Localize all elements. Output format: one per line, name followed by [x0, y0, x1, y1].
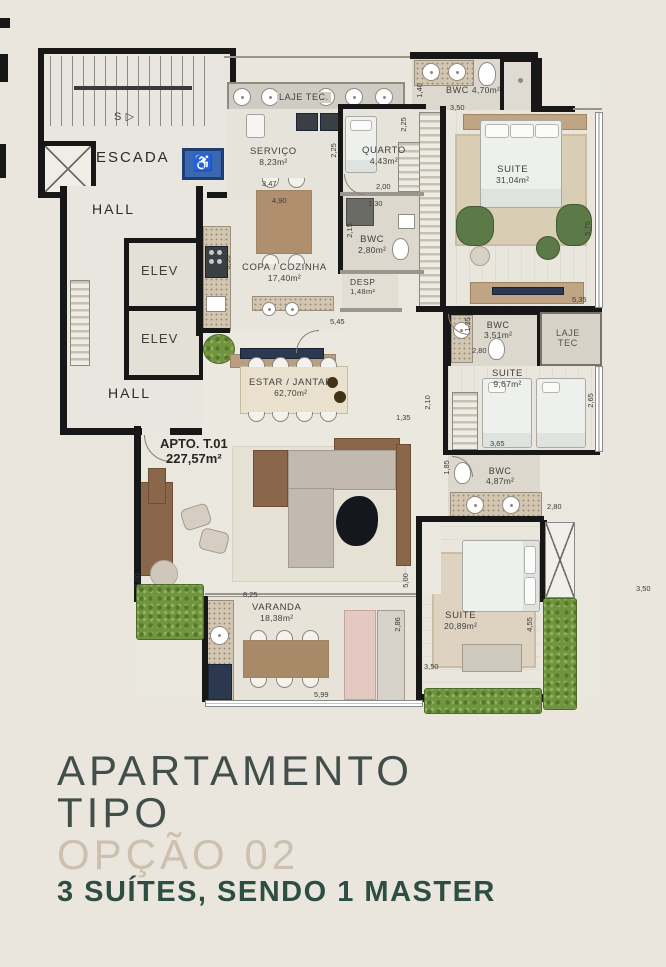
laje-right-1: LAJE: [556, 328, 580, 338]
dimension-label: 5,99: [314, 690, 329, 699]
bwc-social-name: BWC: [360, 234, 384, 245]
wall: [416, 516, 422, 702]
chair-icon: [320, 357, 337, 367]
dimension-label: 2,10: [423, 395, 432, 410]
dimension-label: 1,40: [415, 83, 424, 98]
sliding-door-line: [205, 596, 421, 597]
title-line-1: APARTAMENTO: [57, 750, 413, 792]
bowl-icon: [334, 391, 346, 403]
bowl-icon: [327, 377, 338, 388]
sideboard-icon: [253, 450, 288, 507]
wall: [440, 106, 446, 310]
desp-label: DESP 1,48m²: [350, 278, 376, 296]
pillow: [350, 120, 372, 131]
bwc-suite3-counter: [450, 492, 542, 518]
kitchen-sink: [206, 296, 226, 312]
pillow: [510, 124, 534, 138]
wall: [410, 52, 538, 59]
elevator-2: ELEV: [124, 306, 204, 380]
wall: [338, 104, 343, 274]
dining-table: ESTAR / JANTAR 62,70m²: [240, 366, 348, 414]
side-table-icon: [470, 246, 490, 266]
wall: [196, 186, 203, 336]
dimension-label: 3,55: [223, 255, 232, 270]
dimension-label: 3,50: [636, 584, 651, 593]
dimension-label: 2,86: [393, 617, 402, 632]
dimension-label: 1,35: [396, 413, 411, 422]
wall-stub: [0, 144, 6, 178]
laje-tec-right: LAJE TEC: [540, 312, 602, 366]
apartment-label: APTO. T.01 227,57m²: [160, 436, 228, 466]
quarto-area: 4,43m²: [370, 156, 398, 166]
parapet-line: [573, 108, 602, 110]
toilet-icon: [478, 62, 496, 86]
pillow: [542, 382, 560, 393]
chair-icon: [250, 630, 267, 640]
stool-icon: [285, 302, 299, 316]
sink-icon: [502, 496, 520, 514]
dimension-label: 1,30: [368, 199, 383, 208]
dimension-label: 1,85: [442, 460, 451, 475]
partition: [340, 308, 402, 312]
sink-icon: [210, 626, 229, 645]
laundry-sink: [246, 114, 265, 138]
suite-master-name: SUITE: [497, 164, 528, 175]
suite2-area: 9,67m²: [493, 379, 521, 389]
suite3-label: SUITE 20,89m²: [444, 610, 477, 632]
wall: [196, 328, 230, 333]
varanda-table: [243, 640, 329, 678]
wall-stub: [0, 54, 8, 82]
armchair-icon: [456, 206, 494, 246]
pergola-hatch: [545, 522, 575, 598]
stair-room-label: ESCADA: [96, 152, 170, 163]
estar-name: ESTAR / JANTAR: [249, 377, 333, 388]
suite-master-label: SUITE 31,04m²: [496, 164, 529, 186]
dimension-label: 5,00: [133, 573, 142, 588]
wall: [416, 516, 544, 522]
apartment-area: 227,57m²: [166, 451, 222, 466]
dimension-label: 5,00: [401, 573, 410, 588]
wheelchair-icon: ♿: [182, 148, 224, 180]
bwc-master-name: BWC: [446, 85, 469, 95]
title-subtitle: 3 SUÍTES, SENDO 1 MASTER: [57, 876, 496, 909]
dimension-label: 8,25: [243, 590, 258, 599]
wall: [443, 306, 448, 452]
sink-square: [398, 214, 415, 229]
chair-icon: [302, 630, 319, 640]
suite3-area: 20,89m²: [444, 621, 477, 631]
stool-icon: [262, 302, 276, 316]
pillow: [524, 577, 536, 605]
bed-icon: [462, 540, 540, 612]
estar-area: 62,70m²: [274, 388, 307, 398]
estar-label: ESTAR / JANTAR 62,70m²: [249, 377, 333, 399]
dimension-label: 3,65: [490, 439, 505, 448]
wall: [338, 104, 426, 109]
servico-area: 8,23m²: [259, 157, 287, 167]
laje-circle: [233, 88, 251, 106]
laje-tec-right-label: LAJE TEC: [556, 328, 580, 348]
dimension-label: 4,90: [272, 196, 287, 205]
copa-label: COPA / COZINHA 17,40m²: [242, 262, 327, 284]
dimension-label: 3,50: [424, 662, 439, 671]
bwc-suite2-area: 3,51m²: [484, 330, 512, 340]
dimension-label: 2,00: [376, 182, 391, 191]
copa-name: COPA / COZINHA: [242, 262, 327, 273]
hedge-planter: [424, 688, 542, 714]
sliding-door-line: [205, 593, 421, 595]
varanda-area: 18,38m²: [260, 613, 293, 623]
dimension-label: 2,80: [472, 346, 487, 355]
suite2-wardrobe-hatch: [452, 392, 478, 450]
elevator-1: ELEV: [124, 238, 204, 312]
chair-icon: [296, 357, 313, 367]
hall-top-label: HALL: [92, 204, 135, 215]
hedge-planter: [136, 584, 204, 640]
partition: [340, 270, 424, 274]
bwc-suite3-name: BWC: [489, 466, 512, 476]
wall: [170, 428, 202, 435]
sink-icon: [466, 496, 484, 514]
tv-icon: [492, 287, 564, 295]
dimension-label: 1,35: [463, 317, 472, 332]
copa-area: 17,40m²: [268, 273, 301, 283]
bwc-suite3-label: BWC 4,87m²: [486, 466, 514, 486]
bwc-master-area: 4,70m²: [472, 85, 500, 95]
shower-head: [518, 78, 523, 83]
hall-bottom-label: HALL: [108, 388, 151, 399]
pouf-icon: [536, 236, 560, 260]
chair-icon: [276, 630, 293, 640]
apartment-number: APTO. T.01: [160, 436, 228, 451]
dimension-label: 2,65: [586, 393, 595, 408]
dimension-label: 2,80: [547, 502, 562, 511]
grill-icon: [208, 664, 232, 700]
parapet-line: [224, 56, 416, 58]
pillow: [524, 546, 536, 574]
chair-icon: [248, 357, 265, 367]
kitchen-counter: [203, 226, 231, 331]
wall-stub: [0, 18, 10, 28]
washer-icon: [296, 113, 318, 131]
dimension-label: 3,47: [262, 179, 277, 188]
laje-right-2: TEC: [558, 338, 578, 348]
stair-handrail: [74, 86, 192, 90]
sofa-icon: [288, 450, 396, 490]
bwc-social-label: BWC 2,80m²: [358, 234, 386, 256]
dimension-label: 3,50: [450, 103, 465, 112]
window: [595, 366, 603, 452]
varanda-label: VARANDA 18,38m²: [252, 602, 301, 624]
varanda-name: VARANDA: [252, 602, 301, 613]
elevator-2-label: ELEV: [141, 333, 178, 344]
burner: [209, 259, 214, 264]
dimension-label: 5,75: [583, 221, 592, 236]
dimension-label: 2,25: [329, 143, 338, 158]
quarto-name: QUARTO: [362, 145, 406, 156]
quarto-label: QUARTO 4,43m²: [362, 145, 406, 167]
elevator-1-label: ELEV: [141, 265, 178, 276]
toilet-icon: [392, 238, 409, 260]
wall: [60, 428, 142, 435]
dimension-label: 5,35: [572, 295, 587, 304]
hedge-planter: [543, 598, 577, 710]
corridor-closet-hatch: [419, 112, 442, 308]
coffee-table-icon: [336, 496, 378, 546]
servico-name: SERVIÇO: [250, 146, 297, 157]
bench-icon: [462, 644, 522, 672]
chair-icon: [272, 357, 289, 367]
window: [595, 112, 603, 308]
pillow: [535, 124, 559, 138]
sink-icon: [448, 63, 466, 81]
laje-tec-label: LAJE TEC.: [277, 92, 331, 103]
stair-direction-label: S ▷: [114, 112, 135, 123]
wall: [443, 450, 600, 455]
window: [205, 700, 423, 707]
suite2-name: SUITE: [492, 368, 523, 379]
duct-hatch: [70, 280, 90, 366]
sofa-icon: [288, 488, 334, 568]
title-line-2: TIPO: [57, 792, 171, 834]
bwc-master-label: BWC 4,70m²: [446, 85, 500, 95]
dimension-label: 2,25: [399, 117, 408, 132]
console-icon: [396, 444, 411, 566]
bwc-suite2-name: BWC: [487, 320, 510, 330]
toilet-icon: [488, 338, 505, 360]
floor-plan: S ▷ ESCADA ♿ HALL HALL ELEV ELEV LAJE TE…: [0, 0, 666, 730]
bed-icon: [536, 378, 586, 448]
entry-cabinet-icon: [148, 468, 166, 504]
desp-area: 1,48m²: [350, 287, 375, 296]
desp-name: DESP: [350, 277, 376, 287]
partition: [340, 192, 424, 196]
burner: [209, 250, 214, 255]
pillow: [485, 124, 509, 138]
bwc-suite3-area: 4,87m²: [486, 476, 514, 486]
suite2-label: SUITE 9,67m²: [492, 368, 523, 390]
title-option: OPÇÃO 02: [57, 834, 299, 876]
burner: [217, 250, 222, 255]
dimension-label: 4,55: [525, 617, 534, 632]
bwc-social-area: 2,80m²: [358, 245, 386, 255]
dimension-label: 5,45: [330, 317, 345, 326]
suite-master-area: 31,04m²: [496, 175, 529, 185]
servico-label: SERVIÇO 8,23m²: [250, 146, 297, 168]
sink-icon: [422, 63, 440, 81]
page: { "title": { "line1": "APARTAMENTO", "li…: [0, 0, 666, 967]
burner: [217, 259, 222, 264]
daybed-icon: [344, 610, 376, 700]
bwc-suite2-label: BWC 3,51m²: [484, 320, 512, 340]
suite3-name: SUITE: [445, 610, 476, 621]
wall: [531, 106, 575, 112]
dimension-label: 2,15: [345, 223, 354, 238]
wall: [531, 52, 538, 110]
